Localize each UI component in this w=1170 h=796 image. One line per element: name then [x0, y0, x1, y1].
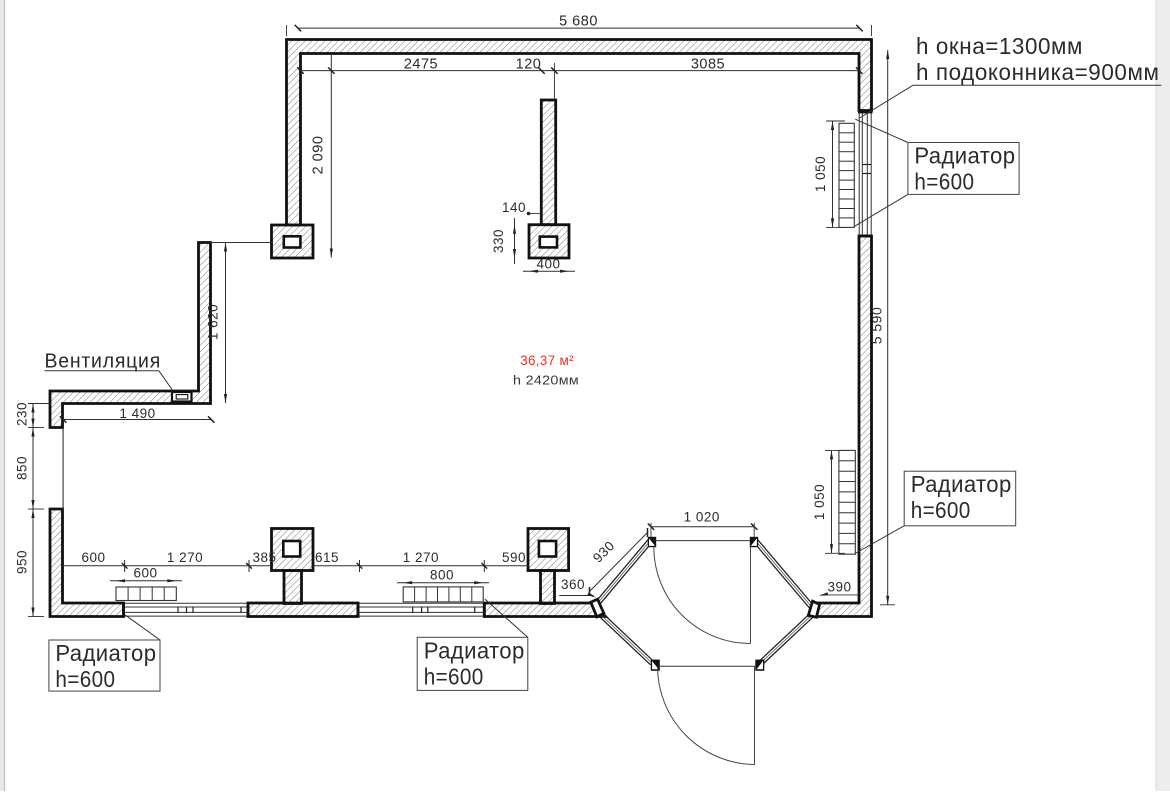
svg-text:Вентиляция: Вентиляция [45, 350, 162, 373]
svg-text:615: 615 [315, 550, 339, 565]
svg-text:120: 120 [516, 56, 542, 72]
svg-text:385: 385 [252, 550, 276, 565]
svg-text:950: 950 [15, 550, 30, 574]
svg-text:h окна=1300мм: h окна=1300мм [916, 33, 1083, 59]
svg-text:5 680: 5 680 [559, 13, 598, 29]
svg-text:1 620: 1 620 [206, 304, 221, 340]
svg-text:h=600: h=600 [55, 666, 115, 692]
svg-text:360: 360 [561, 577, 585, 592]
svg-text:1 270: 1 270 [403, 550, 439, 565]
svg-text:330: 330 [491, 229, 506, 253]
svg-text:Радиатор: Радиатор [914, 143, 1015, 169]
svg-text:1 020: 1 020 [684, 510, 720, 525]
svg-text:400: 400 [536, 257, 560, 272]
svg-text:600: 600 [133, 565, 157, 580]
svg-text:800: 800 [430, 568, 454, 583]
svg-text:600: 600 [81, 550, 105, 565]
svg-text:5 590: 5 590 [869, 307, 885, 345]
svg-text:h=600: h=600 [914, 169, 974, 195]
svg-text:h=600: h=600 [424, 663, 484, 689]
svg-text:1 050: 1 050 [813, 156, 828, 192]
svg-text:390: 390 [827, 580, 851, 595]
svg-text:h=600: h=600 [911, 497, 971, 523]
svg-text:2 090: 2 090 [311, 136, 327, 175]
svg-text:2475: 2475 [404, 56, 438, 72]
svg-text:Радиатор: Радиатор [424, 637, 525, 663]
svg-text:850: 850 [15, 456, 30, 480]
svg-text:140: 140 [502, 200, 526, 215]
svg-text:230: 230 [15, 402, 30, 426]
svg-text:Радиатор: Радиатор [55, 640, 156, 666]
svg-text:h подоконника=900мм: h подоконника=900мм [916, 59, 1160, 85]
svg-text:590: 590 [502, 550, 526, 565]
svg-text:1 490: 1 490 [119, 406, 155, 421]
svg-text:Радиатор: Радиатор [911, 471, 1012, 497]
svg-text:3085: 3085 [691, 56, 725, 72]
svg-text:h 2420мм: h 2420мм [513, 374, 579, 388]
svg-text:1 050: 1 050 [812, 484, 827, 520]
svg-text:36,37 м²: 36,37 м² [520, 353, 574, 368]
svg-text:1 270: 1 270 [167, 550, 203, 565]
